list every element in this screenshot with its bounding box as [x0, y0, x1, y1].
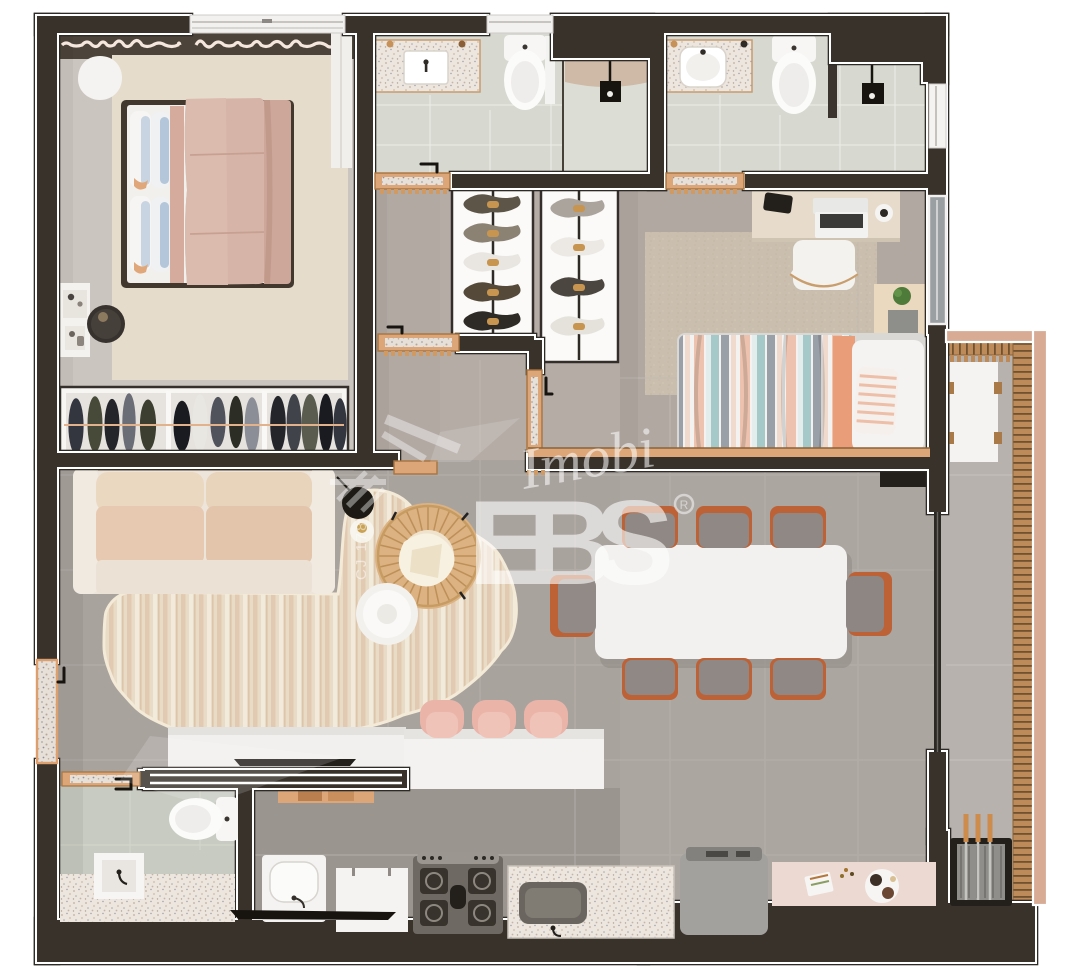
svg-text:EBS: EBS [468, 476, 674, 610]
svg-text:R: R [680, 498, 689, 512]
svg-text:CJ 178: CJ 178 [353, 520, 370, 580]
